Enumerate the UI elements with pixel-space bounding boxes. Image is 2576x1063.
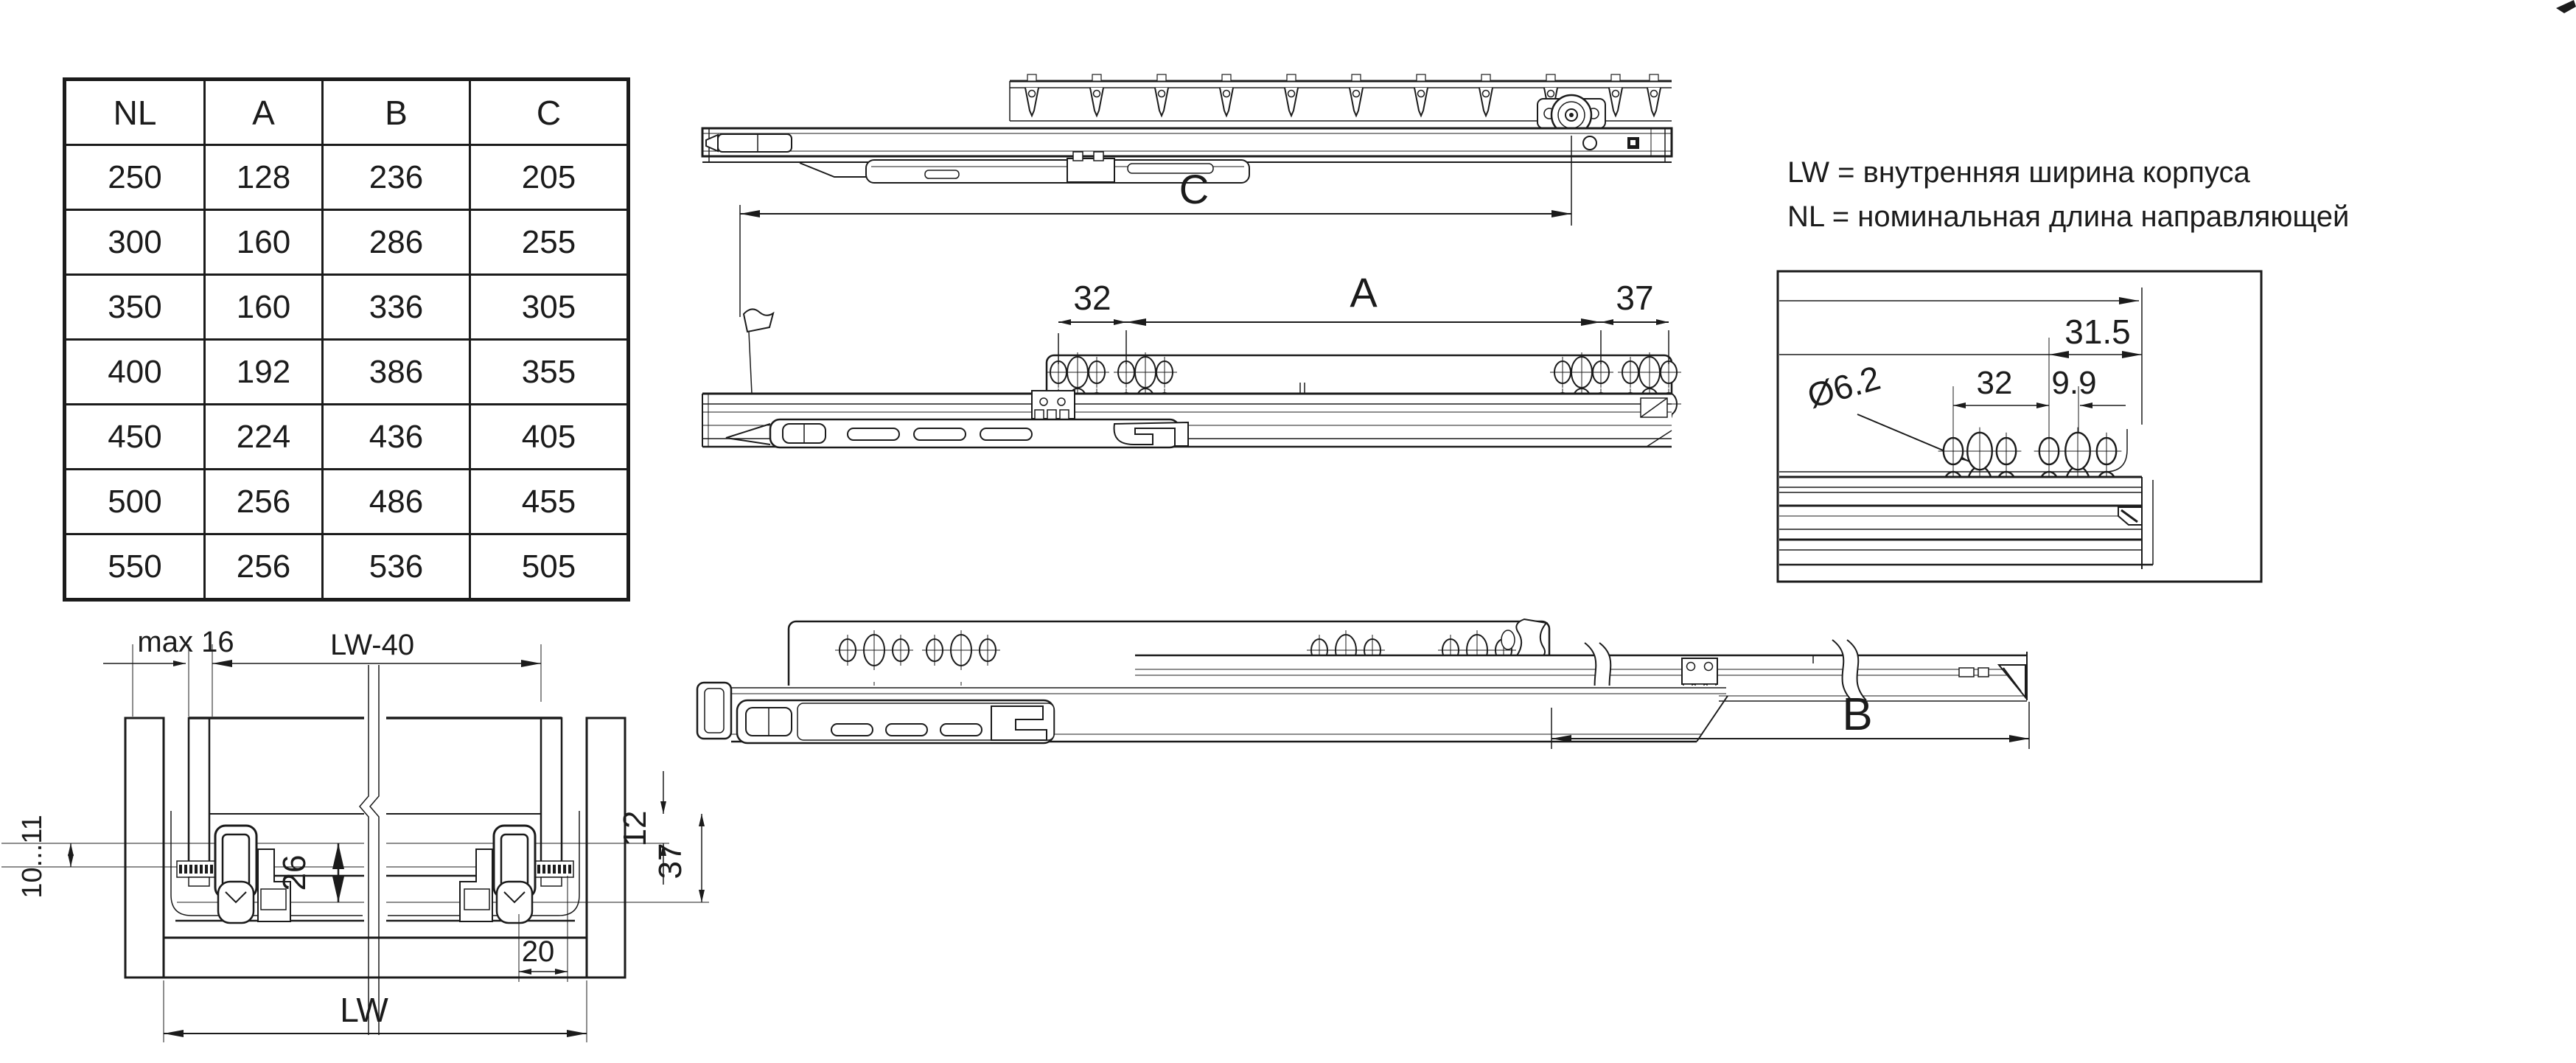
- dimension-lw40: LW-40: [212, 629, 541, 717]
- dim-label-10-11: 10...11: [17, 815, 48, 898]
- cabinet-wall-right: [587, 718, 625, 977]
- drawing-cross-section: max 16 LW-40 10...11 26: [1, 626, 709, 1042]
- center-break-line: [360, 665, 369, 1035]
- detail-box: 31.5 32 9.9 Ø6.2: [1778, 271, 2261, 582]
- drawing-slide-extended: B: [697, 619, 2029, 749]
- drawing-slide-closed: C: [702, 74, 1672, 317]
- dimension-row-mid: 32 A 37: [1058, 269, 1669, 364]
- dim-label-max16: max 16: [137, 626, 234, 658]
- dim-label-31-5: 31.5: [2064, 313, 2131, 351]
- dim-label-b: B: [1842, 689, 1872, 740]
- cabinet-wall-left: [125, 718, 164, 977]
- dim-label-lw: LW: [340, 991, 388, 1029]
- dim-label-a: A: [1350, 269, 1378, 316]
- dim-label-lw40: LW-40: [330, 629, 414, 661]
- mounting-flag-icon: [744, 309, 773, 332]
- dimension-max16: max 16: [103, 626, 234, 717]
- dim-label-26: 26: [276, 855, 313, 891]
- technical-drawing-page: NL A B C 2501282362053001602862553501603…: [0, 0, 2576, 1063]
- dim-label-12: 12: [617, 811, 653, 847]
- drawing-slide-holes: 32 A 37: [702, 269, 1681, 447]
- detail-rail-profile: [1779, 477, 2154, 575]
- dim-label-det-32: 32: [1977, 365, 2013, 401]
- center-break-line: [370, 665, 379, 1035]
- drawer-panel-right: [541, 718, 562, 876]
- dim-label-37: 37: [652, 843, 688, 879]
- dim-label-20: 20: [522, 935, 555, 968]
- dim-label-37: 37: [1616, 279, 1653, 317]
- clip-bracket-mid: [1032, 391, 1075, 422]
- dimension-lw: LW: [164, 980, 587, 1042]
- dimension-12-37: 12 37: [617, 771, 702, 902]
- drawing-canvas: C: [0, 0, 2576, 1063]
- dim-label-32: 32: [1073, 279, 1111, 317]
- drawer-panel-left: [189, 718, 209, 876]
- front-member-ext: [697, 683, 1728, 743]
- dim-label-c: C: [1179, 166, 1209, 212]
- dim-label-9-9: 9.9: [2051, 365, 2096, 401]
- latch-assembly-mid: [726, 419, 1188, 447]
- dimension-10-11: 10...11: [17, 815, 71, 898]
- page-corner-mark: [2556, 0, 2576, 13]
- rail-body-top: [702, 128, 1672, 162]
